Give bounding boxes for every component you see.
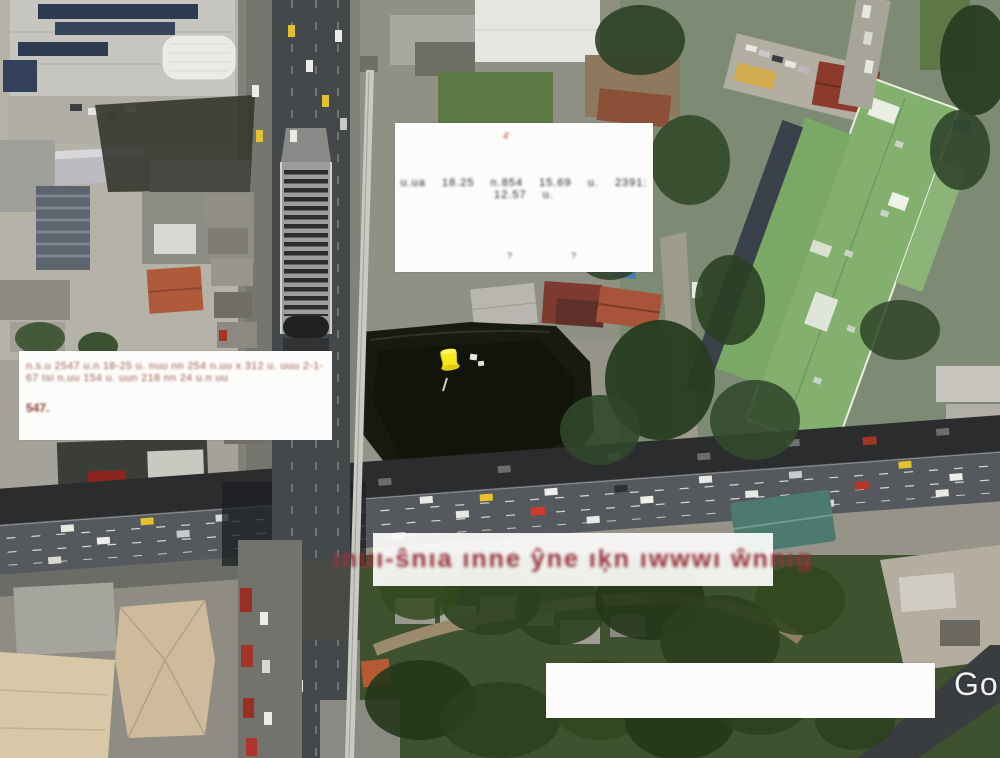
map-viewport[interactable]: 4' u.ua 18.25 n.854 15.69 u. 2391: 12.57… <box>0 0 1000 758</box>
annotation-box-left: n.s.u 2547 u.n 18-25 u. nuu nn 254 n.uu … <box>19 351 332 440</box>
annotation-blurred-line: n.s.u 2547 u.n 18-25 u. nuu nn 254 n.uu … <box>26 360 327 384</box>
annotation-red-mark: 4' <box>503 131 510 141</box>
annotation-box-bottom <box>546 663 935 718</box>
pushpin-icon <box>432 346 472 394</box>
google-watermark: Go <box>954 666 999 703</box>
annotation-box-top: 4' u.ua 18.25 n.854 15.69 u. 2391: 12.57… <box>395 123 653 272</box>
map-pin[interactable] <box>432 346 472 394</box>
annotation-footnote-left: ? <box>507 251 512 261</box>
annotation-blurred-row: u.ua 18.25 n.854 15.69 u. 2391: 12.57 u. <box>395 177 653 201</box>
banner-text: ınuı-ŝnıa ınne ŷne ıķn ıwwwı ŵnnıg <box>333 545 814 574</box>
annotation-red-banner: ınuı-ŝnıa ınne ŷne ıķn ıwwwı ŵnnıg <box>373 533 773 586</box>
annotation-blurred-word: 547. <box>26 401 49 415</box>
annotation-footnote-right: ? <box>571 251 576 261</box>
